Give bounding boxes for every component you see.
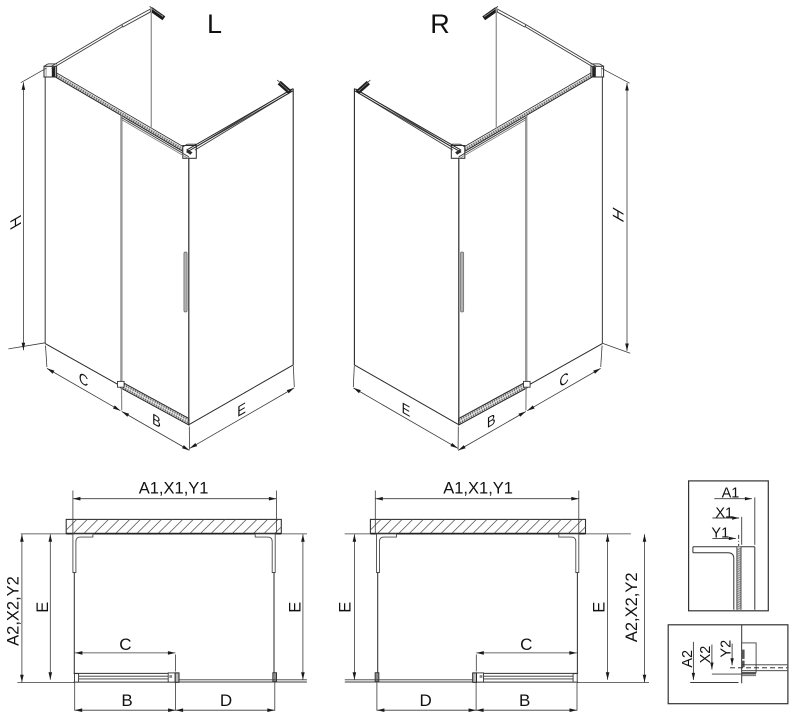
svg-text:L: L: [207, 9, 222, 39]
svg-text:E: E: [337, 602, 355, 613]
svg-text:A2,X2,Y2: A2,X2,Y2: [623, 572, 641, 642]
svg-text:C: C: [520, 635, 532, 654]
svg-text:D: D: [420, 691, 432, 710]
svg-text:A2,X2,Y2: A2,X2,Y2: [4, 576, 22, 646]
svg-text:B: B: [519, 691, 530, 710]
svg-text:Y1: Y1: [711, 526, 729, 542]
svg-text:R: R: [430, 9, 450, 39]
svg-text:D: D: [220, 691, 232, 710]
svg-text:E: E: [591, 602, 609, 613]
svg-text:A1,X1,Y1: A1,X1,Y1: [443, 480, 513, 498]
svg-text:E: E: [286, 602, 304, 613]
svg-text:B: B: [121, 691, 132, 710]
svg-text:C: C: [119, 635, 131, 654]
svg-text:E: E: [34, 602, 52, 613]
svg-text:X1: X1: [715, 506, 733, 522]
svg-text:A1,X1,Y1: A1,X1,Y1: [139, 480, 209, 498]
